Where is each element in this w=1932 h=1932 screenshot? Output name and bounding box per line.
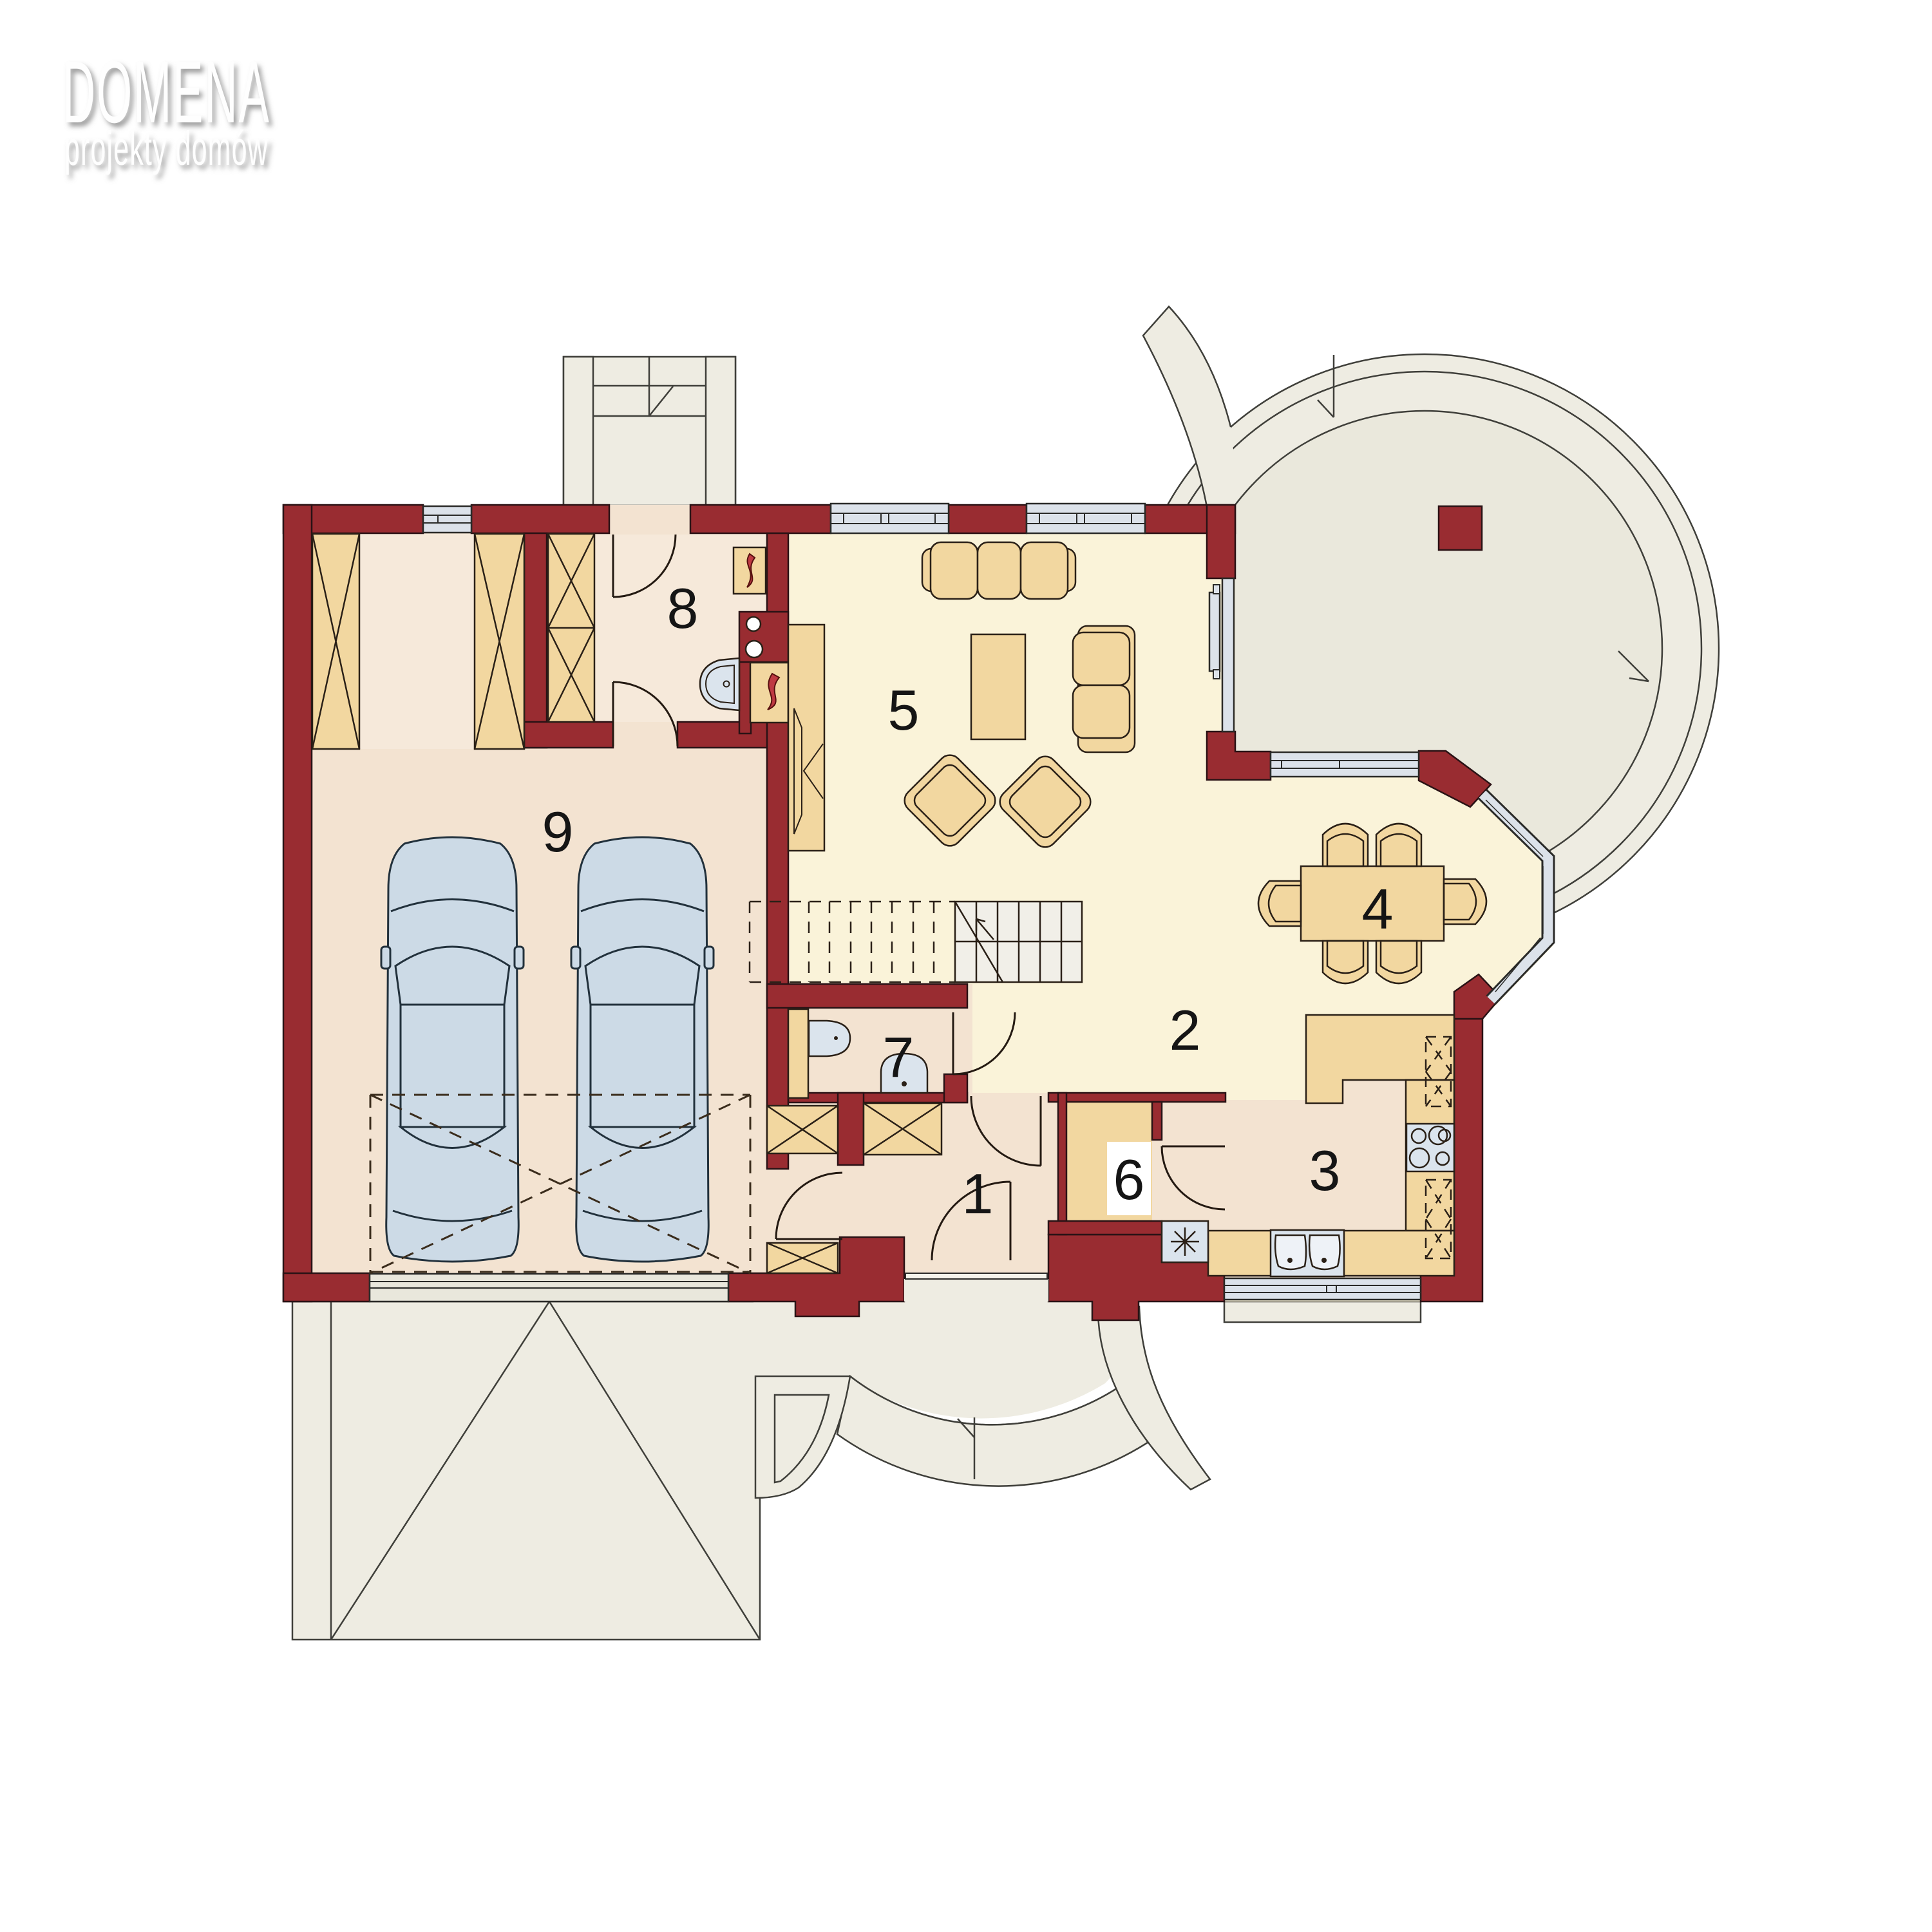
- svg-text:3: 3: [1309, 1139, 1341, 1202]
- svg-text:5: 5: [888, 678, 920, 742]
- svg-text:1: 1: [962, 1162, 994, 1226]
- svg-text:9: 9: [542, 800, 574, 864]
- svg-text:2: 2: [1170, 998, 1201, 1062]
- svg-text:projekty domów: projekty domów: [64, 122, 269, 175]
- svg-text:8: 8: [667, 576, 699, 640]
- svg-text:6: 6: [1113, 1148, 1145, 1211]
- svg-text:7: 7: [883, 1025, 914, 1089]
- svg-text:4: 4: [1362, 877, 1394, 941]
